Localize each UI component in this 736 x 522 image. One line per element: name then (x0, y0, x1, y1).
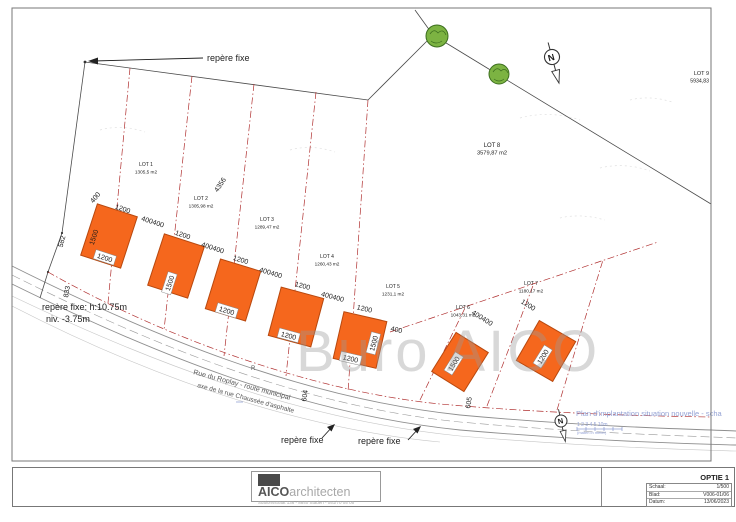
architect-name-light: architecten (289, 485, 350, 499)
repere-fixe-left-label-2: niv. -3.75m (46, 314, 90, 324)
architect-name-bold: AICO (258, 485, 289, 499)
dimension-label: 604 (301, 389, 310, 402)
dimension-label: 4356 (213, 177, 228, 194)
blad-value: V006-01/06 (703, 492, 729, 499)
tree-icon (426, 25, 448, 47)
labels-layer: repère fixerepère fixe: h:10.75mniv. -3.… (42, 52, 723, 446)
blad-label: Blad: (649, 492, 660, 499)
lot-area-8: 3579,87 m2 (477, 151, 507, 157)
lot-label-9: LOT 9 (694, 71, 709, 77)
terrain-marks (100, 98, 672, 220)
option-label: OPTIE 1 (700, 473, 729, 482)
datum-value: 13/06/2023 (704, 499, 729, 506)
parcel-boundary (40, 10, 711, 298)
north-arrow-icon (541, 41, 566, 85)
lot-label-2: LOT 2 (194, 196, 208, 202)
title-block: AICOarchitecten Stationsstraat 136 - 884… (12, 467, 735, 507)
hydrant-symbol: R (251, 366, 256, 372)
lot-label-1: LOT 1 (139, 162, 153, 168)
title-block-divider (601, 468, 602, 506)
datum-label: Datum: (649, 499, 665, 506)
dimension-label: 400400 (320, 291, 344, 304)
architect-address: Stationsstraat 136 - 8840 Staden - 051/7… (258, 500, 380, 505)
lot-area-1: 1305,5 m2 (135, 170, 158, 175)
dimension-label: 1200 (294, 281, 311, 292)
repere-fixe-left-label-1: repère fixe: h:10.75m (42, 302, 127, 312)
lot-area-5: 1231,1 m2 (382, 292, 405, 297)
dimension-label: 1200 (519, 299, 536, 313)
repere-fixe-bottom-label-2: repère fixe (358, 436, 401, 446)
schaal-value: 1/500 (716, 484, 729, 491)
dimension-label: 605 (465, 396, 474, 409)
lot-label-3: LOT 3 (260, 217, 274, 223)
info-table: Schaal: 1/500 Blad: V006-01/06 Datum: 13… (646, 483, 732, 507)
building-footprint-2 (148, 234, 205, 298)
lot-label-4: LOT 4 (320, 254, 334, 260)
architect-logo-box: AICOarchitecten Stationsstraat 136 - 884… (251, 471, 381, 502)
lot-label-6: LOT 6 (456, 305, 470, 311)
lot-label-5: LOT 5 (386, 284, 400, 290)
survey-point (84, 61, 87, 64)
dimension-label: 582 (58, 235, 68, 248)
lot-area-4: 1260,43 m2 (315, 262, 340, 267)
dimension-label: 400400 (140, 216, 164, 230)
lot-area-3: 1289,47 m2 (255, 225, 280, 230)
lot-area-9: 5934,83 (690, 79, 709, 85)
lot-label-8: LOT 8 (484, 143, 501, 149)
dimension-label: 400400 (200, 242, 224, 256)
repere-fixe-top-label: repère fixe (207, 53, 250, 63)
scale-bar-numbers: 1 2 3 4 5 10m (577, 422, 608, 428)
schaal-label: Schaal: (649, 484, 666, 491)
info-row-blad: Blad: V006-01/06 (647, 491, 731, 499)
dimension-label: 833 (63, 285, 72, 298)
survey-point (61, 232, 63, 234)
tree-icon (489, 64, 509, 84)
repere-fixe-bottom-label-1: repère fixe (281, 435, 324, 445)
info-row-datum: Datum: 13/06/2023 (647, 498, 731, 506)
lot-area-2: 1305,98 m2 (189, 204, 214, 209)
plan-note: Plan d'implantation situation nouvelle -… (576, 409, 723, 418)
scale-bar-caption: (maten in meter) (577, 430, 607, 435)
dimension-label: 400 (390, 326, 403, 335)
site-plan-svg: repère fixerepère fixe: h:10.75mniv. -3.… (0, 0, 736, 522)
dimension-label: 400 (89, 191, 102, 205)
lot-area-6: 1043,31 m2 (451, 313, 476, 318)
lot-division-lines (48, 68, 711, 417)
architect-name: AICOarchitecten (258, 486, 380, 499)
lot-area-7: 1180,17 m2 (519, 289, 544, 294)
annotation-arrows (88, 58, 421, 441)
lot-label-7: LOT 7 (524, 281, 538, 287)
drawing-sheet: repère fixerepère fixe: h:10.75mniv. -3.… (0, 0, 736, 522)
dimension-label: 1200 (356, 304, 373, 314)
dimension-label: 400400 (258, 267, 282, 281)
